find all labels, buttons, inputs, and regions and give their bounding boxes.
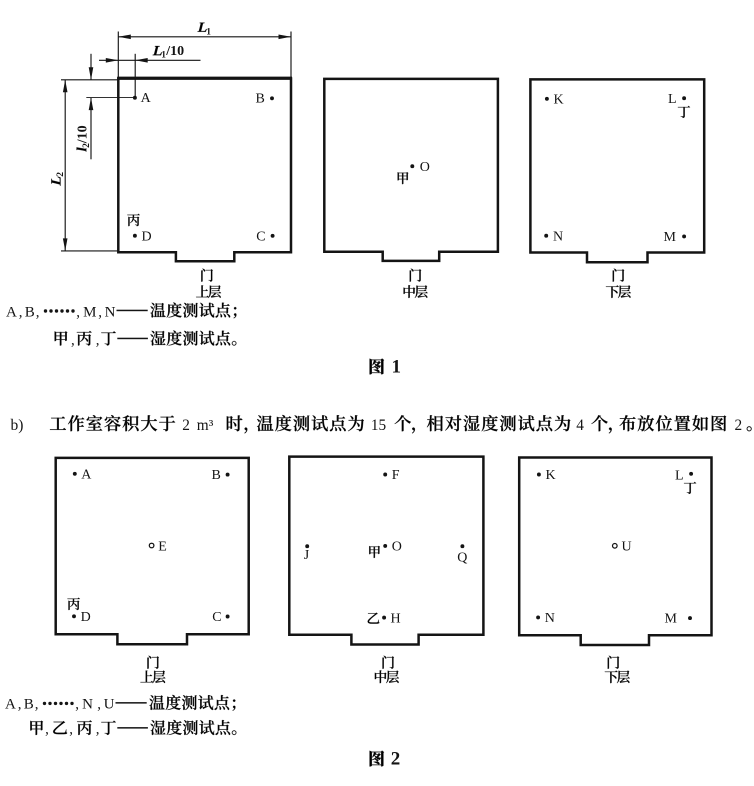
svg-text:H: H	[391, 611, 401, 626]
svg-text:L: L	[668, 92, 677, 107]
svg-text:N: N	[545, 611, 555, 626]
svg-text:M: M	[83, 304, 96, 320]
svg-text:L: L	[675, 468, 684, 483]
svg-text:1: 1	[206, 27, 211, 37]
svg-text:U: U	[622, 540, 632, 555]
svg-text:15: 15	[371, 417, 387, 434]
svg-text:,: ,	[36, 304, 40, 320]
svg-text:B: B	[25, 304, 35, 320]
svg-text:M: M	[664, 230, 677, 245]
svg-text:,: ,	[96, 332, 100, 348]
svg-text:2: 2	[56, 172, 66, 177]
svg-text:,: ,	[97, 697, 101, 713]
svg-text:/10: /10	[165, 44, 184, 59]
svg-text:b): b)	[11, 417, 24, 434]
svg-text:,: ,	[45, 722, 49, 738]
svg-text:,: ,	[71, 332, 75, 348]
svg-text:D: D	[81, 610, 91, 625]
svg-text:,: ,	[69, 722, 73, 738]
svg-text:4: 4	[576, 417, 584, 434]
svg-text:2: 2	[182, 417, 190, 434]
svg-text:,: ,	[35, 697, 39, 713]
svg-text:A: A	[81, 467, 92, 482]
svg-text:F: F	[392, 468, 400, 483]
svg-text:,: ,	[18, 697, 22, 713]
svg-text:A: A	[5, 697, 16, 713]
svg-text:N: N	[82, 697, 93, 713]
svg-text:D: D	[142, 229, 152, 244]
svg-text:,: ,	[96, 722, 100, 738]
svg-text:B: B	[24, 697, 34, 713]
svg-text:,: ,	[75, 697, 79, 713]
svg-text:E: E	[158, 539, 167, 554]
svg-text:N: N	[105, 304, 116, 320]
svg-text:M: M	[665, 612, 678, 627]
svg-text:C: C	[256, 230, 265, 245]
svg-text:O: O	[420, 160, 430, 175]
svg-text:,: ,	[76, 304, 80, 320]
svg-text:,: ,	[19, 304, 23, 320]
svg-text:/10: /10	[75, 125, 90, 144]
svg-text:B: B	[212, 468, 221, 483]
svg-text:U: U	[104, 697, 115, 713]
svg-text:m: m	[197, 417, 209, 434]
svg-text:2: 2	[735, 417, 743, 434]
svg-text:A: A	[6, 304, 17, 320]
svg-text:1: 1	[392, 357, 402, 378]
svg-text:K: K	[546, 468, 556, 483]
svg-text:B: B	[256, 92, 265, 107]
svg-text:Q: Q	[457, 551, 467, 566]
svg-text:,: ,	[98, 304, 102, 320]
svg-text:J: J	[304, 548, 310, 563]
svg-text:³: ³	[209, 417, 214, 434]
svg-text:C: C	[212, 610, 221, 625]
svg-text:K: K	[554, 92, 564, 107]
svg-text:2: 2	[391, 749, 401, 770]
svg-text:O: O	[392, 540, 402, 555]
svg-text:N: N	[553, 229, 563, 244]
svg-text:A: A	[141, 91, 152, 106]
